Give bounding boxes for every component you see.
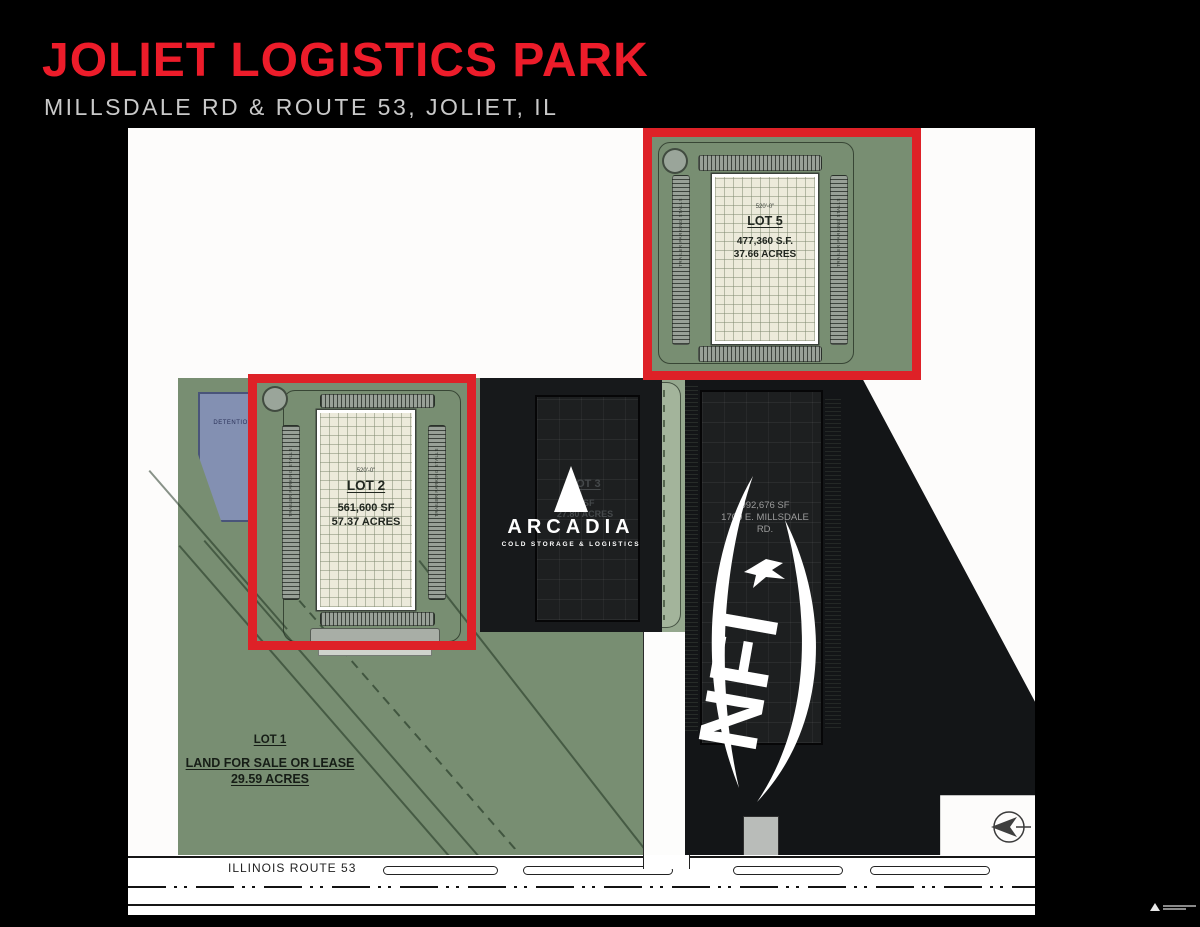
millsdale-road-south	[643, 632, 687, 858]
road-median-island	[733, 866, 843, 875]
millsdale-road-centerline	[663, 390, 665, 620]
road-center-dashed-line	[128, 886, 1035, 888]
arcadia-wordmark: ARCADIA	[480, 516, 662, 539]
watermark-text-bar	[1163, 905, 1196, 907]
page-title: JOLIET LOGISTICS PARK	[42, 33, 649, 88]
lot3-arcadia-parcel: LOT 3 0 SF 27.80 ACRES ARCADIA COLD STOR…	[480, 378, 662, 632]
route53-road: ILLINOIS ROUTE 53	[128, 855, 1035, 915]
site-plan: DETENTION LOT 1 LAND FOR SALE OR LEASE 2…	[128, 128, 1035, 915]
road-edge-line	[128, 856, 1035, 858]
flyer-canvas: JOLIET LOGISTICS PARK MILLSDALE RD & ROU…	[0, 0, 1200, 927]
lot1-name: LOT 1	[165, 733, 375, 747]
watermark-triangle-icon	[1150, 903, 1160, 911]
road-median-island	[870, 866, 990, 875]
lot2-highlight-box	[248, 374, 476, 650]
watermark-text-bar	[1163, 908, 1186, 910]
lot1-acres: 29.59 ACRES	[165, 772, 375, 788]
road-median-island	[383, 866, 498, 875]
lot5-highlight-box	[643, 128, 921, 380]
nfi-driveway	[743, 816, 779, 857]
lot4-nfi-parcel: 992,676 SF 1700 E. MILLSDALE RD. NFI	[685, 378, 1035, 857]
lot1-sale-text: LAND FOR SALE OR LEASE	[165, 756, 375, 772]
road-edge-line-south	[128, 904, 1035, 906]
nfi-logo: NFI	[693, 470, 841, 805]
arcadia-triangle-icon	[554, 466, 588, 512]
nfi-logo-text: NFI	[693, 602, 797, 757]
road-intersection-gap	[643, 855, 690, 869]
north-arrow-icon	[986, 804, 1032, 850]
lot1-label-block: LOT 1 LAND FOR SALE OR LEASE 29.59 ACRES	[165, 733, 375, 788]
arcadia-tagline: COLD STORAGE & LOGISTICS	[480, 541, 662, 548]
watermark-logo	[1150, 903, 1196, 911]
page-subtitle: MILLSDALE RD & ROUTE 53, JOLIET, IL	[44, 94, 558, 121]
nfi-bird-icon	[744, 559, 785, 588]
route53-label: ILLINOIS ROUTE 53	[228, 861, 356, 875]
